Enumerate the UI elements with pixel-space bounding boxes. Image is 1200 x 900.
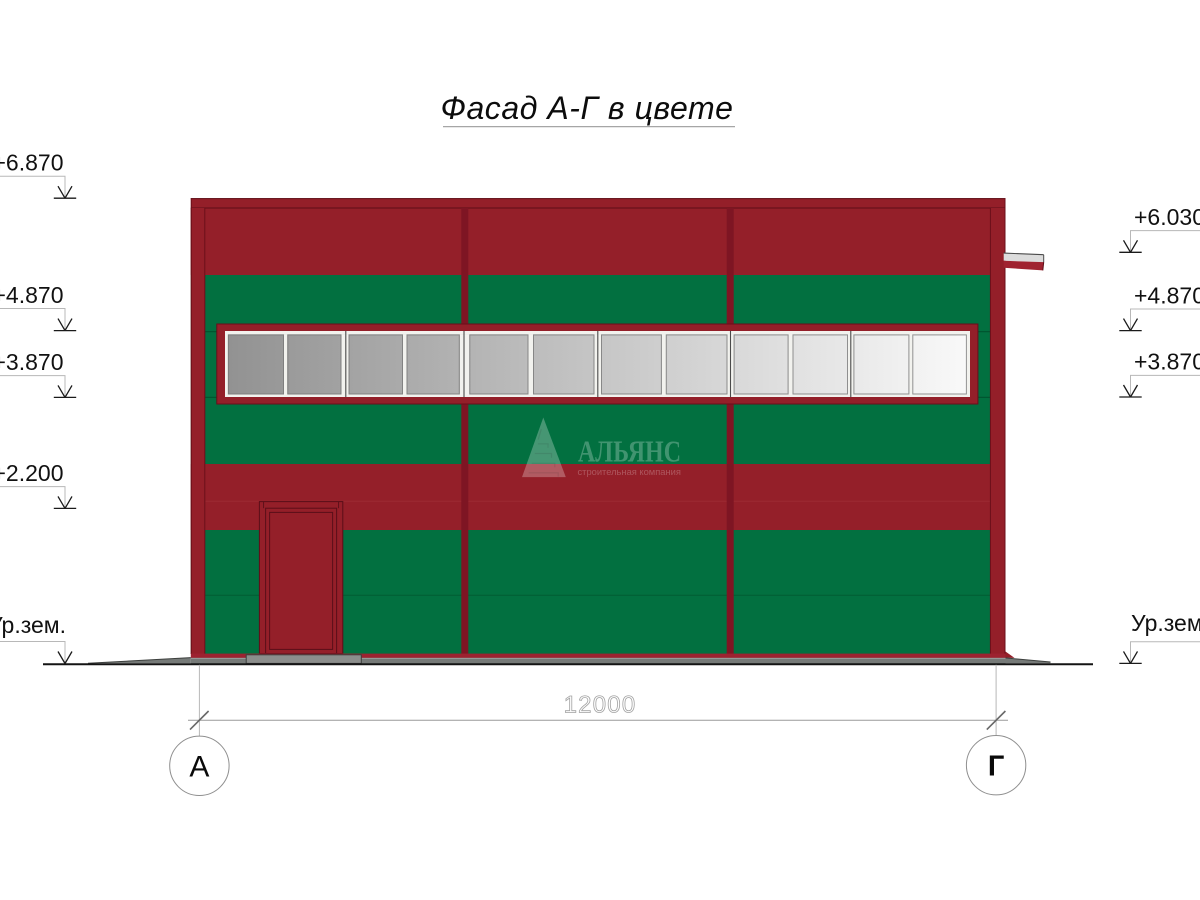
svg-text:Ур.зем.: Ур.зем. (1131, 610, 1200, 636)
svg-text:+6.870: +6.870 (0, 150, 64, 176)
svg-text:+4.870: +4.870 (0, 282, 64, 308)
svg-text:АЛЬЯНС: АЛЬЯНС (578, 434, 681, 469)
svg-text:Ур.зем.: Ур.зем. (0, 612, 66, 638)
svg-text:Г: Г (988, 750, 1004, 782)
svg-text:строительная компания: строительная компания (578, 467, 681, 478)
svg-text:+3.870: +3.870 (1134, 349, 1200, 375)
svg-text:Фасад А-Г в цвете: Фасад А-Г в цвете (440, 90, 733, 126)
svg-text:+4.870: +4.870 (1134, 282, 1200, 308)
svg-text:12000: 12000 (564, 692, 637, 719)
svg-text:А: А (189, 751, 209, 784)
svg-text:+2.200: +2.200 (0, 460, 64, 486)
svg-text:+6.030: +6.030 (1134, 204, 1200, 230)
svg-text:+3.870: +3.870 (0, 349, 64, 375)
